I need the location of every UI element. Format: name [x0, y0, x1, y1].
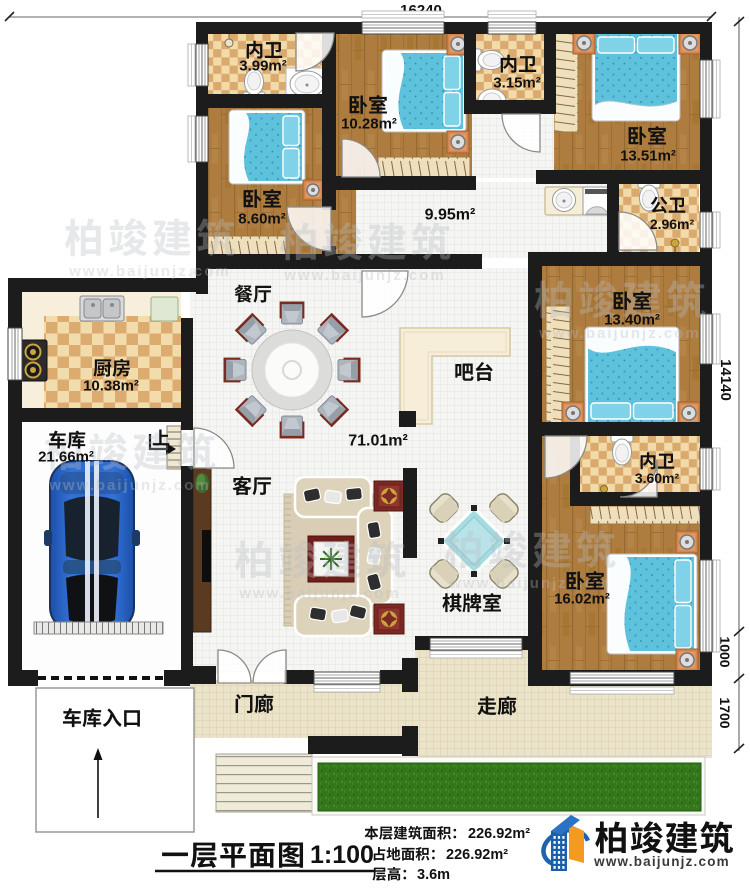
- svg-text:13.51m²: 13.51m²: [620, 147, 676, 164]
- svg-text:www.baijunjz.com: www.baijunjz.com: [238, 585, 400, 602]
- svg-text:2.96m²: 2.96m²: [650, 216, 695, 232]
- svg-text:9.95m²: 9.95m²: [425, 207, 476, 224]
- svg-text:3.6m: 3.6m: [417, 867, 450, 883]
- svg-text:226.92m²: 226.92m²: [446, 847, 508, 863]
- svg-text:www.baijunjz.com: www.baijunjz.com: [283, 267, 445, 284]
- svg-text:www.baijunjz.com: www.baijunjz.com: [593, 854, 730, 869]
- svg-text:8.60m²: 8.60m²: [238, 210, 286, 227]
- svg-text:3.15m²: 3.15m²: [493, 74, 541, 91]
- svg-text:1700: 1700: [717, 697, 733, 728]
- svg-text:71.01m²: 71.01m²: [348, 433, 408, 450]
- svg-text:www.baijunjz.com: www.baijunjz.com: [48, 477, 210, 494]
- svg-text:16.02m²: 16.02m²: [554, 590, 610, 607]
- svg-text:226.92m²: 226.92m²: [468, 826, 530, 842]
- svg-text:1:100: 1:100: [310, 841, 374, 869]
- svg-text:3.60m²: 3.60m²: [635, 470, 680, 486]
- svg-text:10.28m²: 10.28m²: [341, 115, 397, 132]
- svg-text:www.baijunjz.com: www.baijunjz.com: [68, 263, 230, 280]
- svg-text:3.99m²: 3.99m²: [239, 57, 287, 74]
- svg-text:13.40m²: 13.40m²: [604, 311, 660, 328]
- svg-text:21.66m²: 21.66m²: [38, 448, 94, 465]
- svg-text:10.38m²: 10.38m²: [83, 377, 139, 394]
- svg-text:14140: 14140: [717, 359, 734, 401]
